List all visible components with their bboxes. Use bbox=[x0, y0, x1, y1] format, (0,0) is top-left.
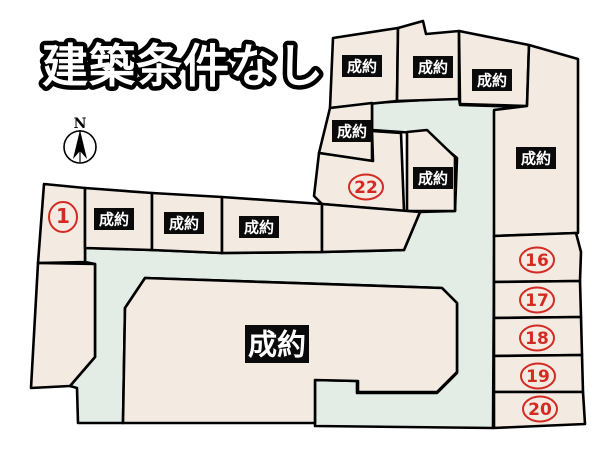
lot-1-number: 1 bbox=[56, 204, 70, 228]
lot-row-c-sold-label: 成約 bbox=[244, 218, 274, 236]
lot-north-c-shape bbox=[459, 31, 529, 106]
lot-north-b-sold-label: 成約 bbox=[418, 58, 448, 76]
lot-row-b-sold-label: 成約 bbox=[169, 214, 199, 232]
site-plan-map: 成約成約成約成約成約22成約1成約成約成約成約1617181920 建築条件なし… bbox=[0, 0, 600, 459]
lot-18-number: 18 bbox=[525, 329, 549, 349]
compass-n-label: N bbox=[74, 116, 87, 132]
lot-north-a-sold-label: 成約 bbox=[347, 57, 377, 75]
lot-22-number: 22 bbox=[354, 178, 378, 198]
lot-map-page: 成約成約成約成約成約22成約1成約成約成約成約1617181920 建築条件なし… bbox=[0, 0, 600, 459]
page-title: 建築条件なし bbox=[42, 39, 324, 93]
lot-17-number: 17 bbox=[525, 291, 549, 311]
lot-west-wedge-shape bbox=[31, 263, 95, 388]
lot-central-large-sold-label: 成約 bbox=[248, 327, 306, 361]
lot-row-a-sold-label: 成約 bbox=[99, 210, 129, 228]
lot-19-number: 19 bbox=[526, 367, 550, 387]
lot-row-d-shape bbox=[322, 204, 420, 252]
lot-20-number: 20 bbox=[528, 400, 552, 420]
lot-16-number: 16 bbox=[525, 251, 549, 271]
lot-east-large-sold-label: 成約 bbox=[521, 149, 551, 167]
lot-north-c-sold-label: 成約 bbox=[477, 71, 507, 89]
lot-mid-upper-sold-label: 成約 bbox=[337, 122, 367, 140]
lot-mid-east-sold-label: 成約 bbox=[418, 169, 448, 187]
